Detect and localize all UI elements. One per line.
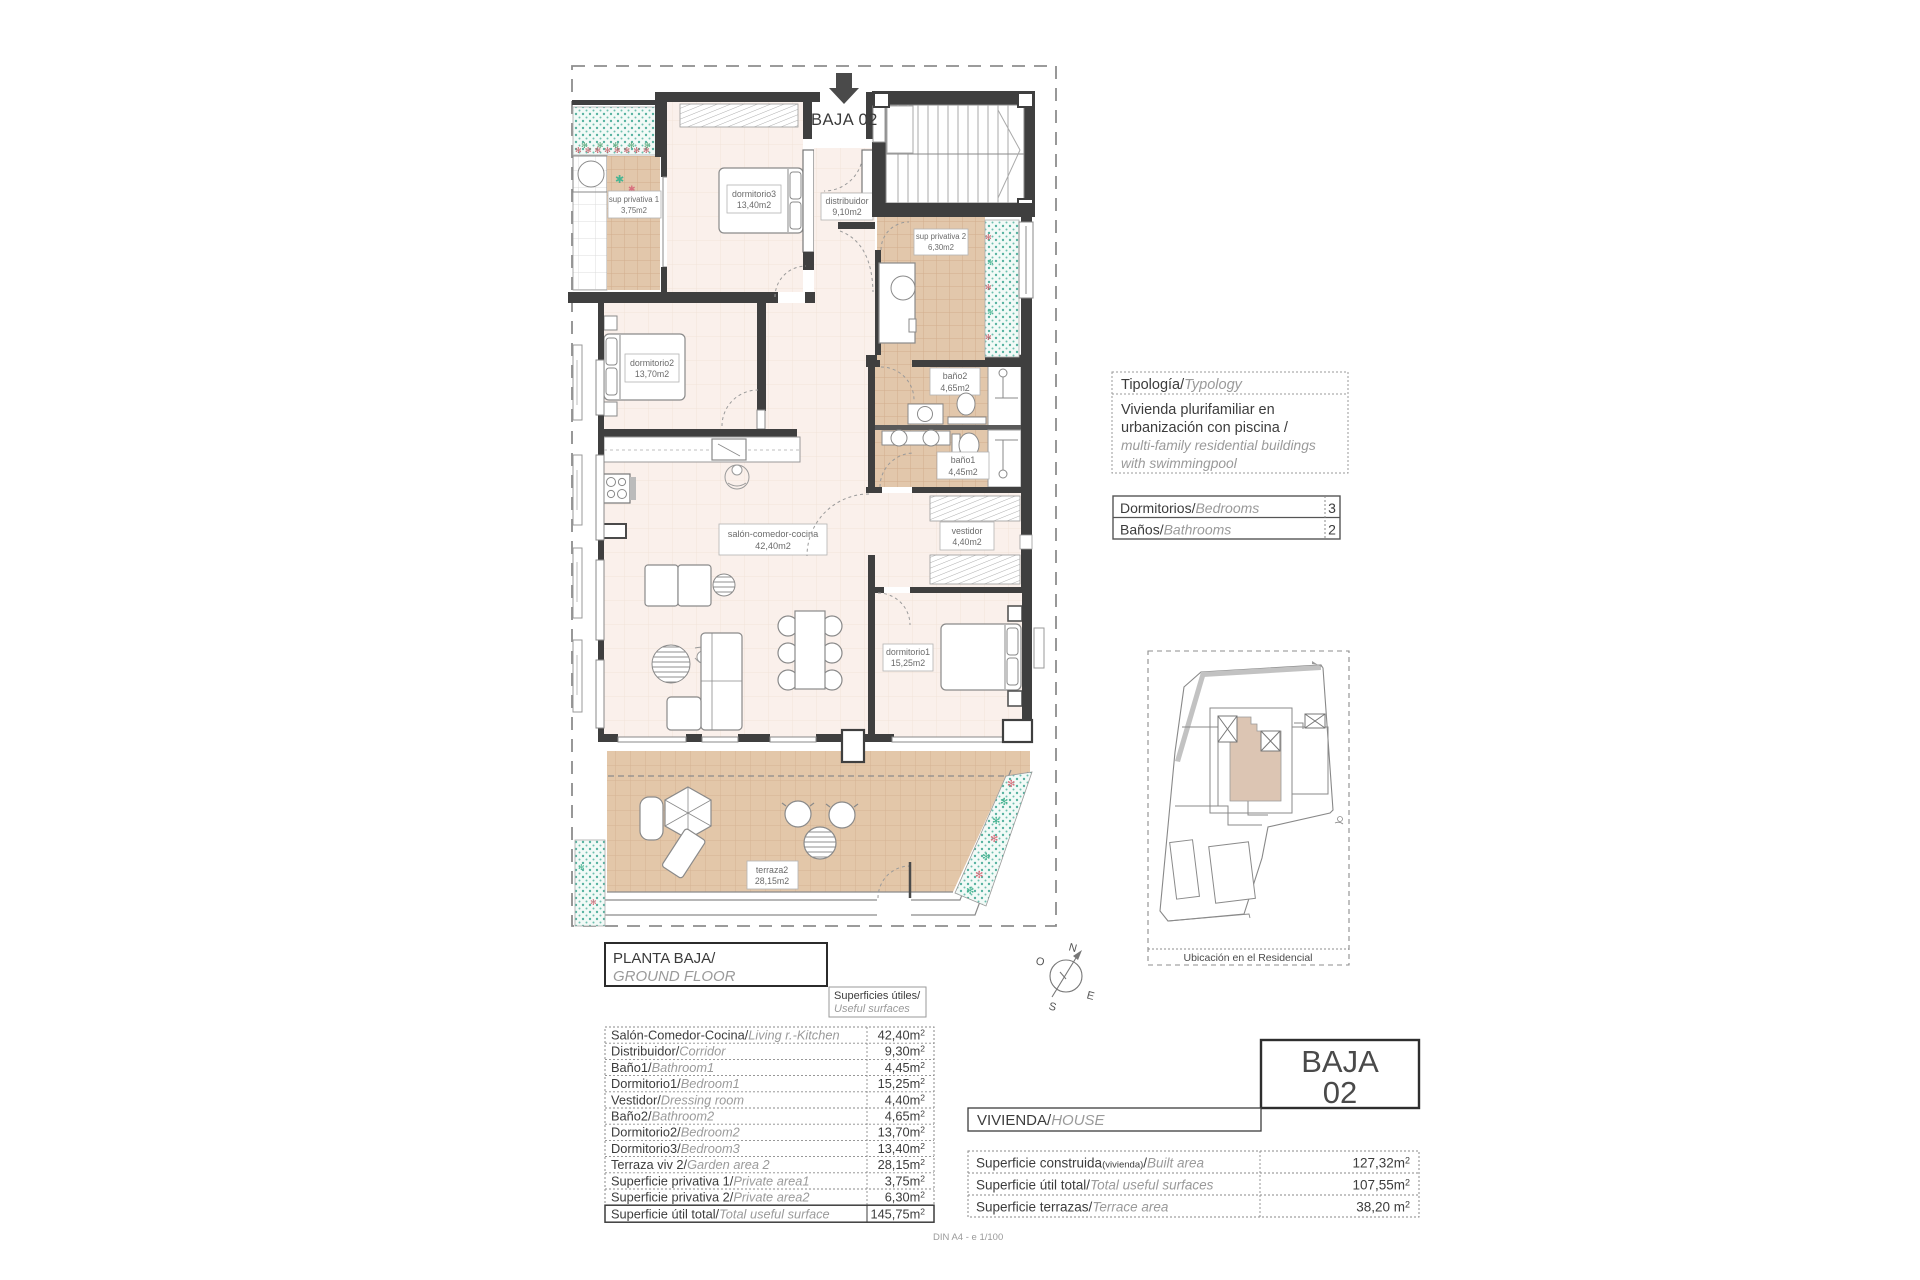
svg-text:dormitorio1: dormitorio1 [886, 647, 930, 657]
svg-text:4,40m2: 4,40m2 [885, 1092, 926, 1107]
svg-text:42,40m2: 42,40m2 [755, 541, 791, 551]
svg-text:42,40m2: 42,40m2 [878, 1028, 926, 1043]
svg-text:13,70m2: 13,70m2 [635, 369, 669, 379]
svg-text:Superficie terrazas/Terrace ar: Superficie terrazas/Terrace area [976, 1200, 1169, 1215]
svg-text:Vivienda plurifamiliar en: Vivienda plurifamiliar en [1121, 402, 1275, 418]
svg-text:127,32m2: 127,32m2 [1352, 1156, 1410, 1171]
svg-text:✻: ✻ [975, 870, 983, 881]
svg-text:15,25m2: 15,25m2 [891, 658, 925, 668]
svg-text:Superficie construida(vivienda: Superficie construida(vivienda)/Built ar… [976, 1156, 1205, 1171]
svg-text:✻: ✻ [1007, 779, 1015, 790]
svg-text:6,30m2: 6,30m2 [885, 1190, 926, 1205]
svg-text:Superficies útiles/: Superficies útiles/ [834, 990, 921, 1002]
svg-text:9,30m2: 9,30m2 [885, 1044, 926, 1059]
svg-text:PLANTA BAJA/: PLANTA BAJA/ [613, 950, 716, 967]
svg-text:6,30m2: 6,30m2 [928, 243, 954, 252]
svg-text:145,75m2: 145,75m2 [870, 1207, 925, 1222]
svg-text:13,40m2: 13,40m2 [737, 200, 771, 210]
svg-text:✻: ✻ [985, 283, 992, 292]
svg-text:BAJA: BAJA [1301, 1044, 1379, 1079]
svg-text:28,15m2: 28,15m2 [755, 876, 789, 886]
svg-text:with swimmingpool: with swimmingpool [1121, 456, 1238, 471]
svg-text:Salón-Comedor-Cocina/Living r.: Salón-Comedor-Cocina/Living r.-Kitchen [611, 1028, 840, 1043]
svg-text:salón-comedor-cocina: salón-comedor-cocina [728, 529, 819, 539]
svg-text:DIN A4 - e 1/100: DIN A4 - e 1/100 [933, 1232, 1003, 1243]
svg-text:3,75m2: 3,75m2 [621, 206, 647, 215]
svg-text:Dormitorios/Bedrooms: Dormitorios/Bedrooms [1120, 500, 1259, 516]
svg-text:3,75m2: 3,75m2 [885, 1173, 926, 1188]
svg-text:107,55m2: 107,55m2 [1352, 1178, 1410, 1193]
svg-text:Tipología/Typology: Tipología/Typology [1121, 377, 1243, 393]
svg-text:Baños/Bathrooms: Baños/Bathrooms [1120, 522, 1231, 538]
svg-text:sup privativa 2: sup privativa 2 [916, 232, 966, 241]
svg-text:BAJA 02: BAJA 02 [811, 111, 878, 129]
svg-text:13,70m2: 13,70m2 [878, 1125, 926, 1140]
svg-text:✻: ✻ [982, 852, 990, 863]
svg-text:Superficie privativa 2/Private: Superficie privativa 2/Private area2 [611, 1190, 809, 1205]
svg-text:13,40m2: 13,40m2 [878, 1141, 926, 1156]
svg-text:Useful surfaces: Useful surfaces [834, 1003, 910, 1015]
svg-text:baño2: baño2 [943, 371, 968, 381]
svg-text:4,45m2: 4,45m2 [885, 1060, 926, 1075]
svg-text:Superficie útil total/Total us: Superficie útil total/Total useful surfa… [611, 1207, 830, 1222]
svg-text:✻: ✻ [987, 308, 994, 317]
svg-text:38,20 m2: 38,20 m2 [1356, 1200, 1410, 1215]
svg-text:dormitorio3: dormitorio3 [732, 189, 776, 199]
svg-text:Superficie útil total/Total us: Superficie útil total/Total useful surfa… [976, 1178, 1214, 1193]
svg-text:02: 02 [1323, 1075, 1357, 1110]
svg-text:✻: ✻ [990, 834, 998, 845]
svg-text:vestidor: vestidor [952, 526, 983, 536]
svg-text:Distribuidor/Corridor: Distribuidor/Corridor [611, 1044, 726, 1059]
svg-text:Baño1/Bathroom1: Baño1/Bathroom1 [611, 1060, 714, 1075]
svg-text:4,65m2: 4,65m2 [940, 383, 969, 393]
svg-text:terraza2: terraza2 [756, 865, 788, 875]
svg-text:✱: ✱ [615, 174, 624, 186]
svg-text:9,10m2: 9,10m2 [832, 207, 861, 217]
svg-text:Dormitorio2/Bedroom2: Dormitorio2/Bedroom2 [611, 1125, 740, 1140]
svg-text:4,40m2: 4,40m2 [952, 537, 981, 547]
svg-text:Terraza viv 2/Garden area 2: Terraza viv 2/Garden area 2 [611, 1157, 770, 1172]
svg-text:15,25m2: 15,25m2 [878, 1076, 926, 1091]
svg-text:✻: ✻ [985, 333, 992, 342]
svg-text:✻: ✻ [578, 863, 585, 872]
svg-text:baño1: baño1 [951, 455, 976, 465]
svg-text:✻: ✻ [1000, 797, 1008, 808]
svg-text:3: 3 [1328, 500, 1336, 516]
svg-text:Vestidor/Dressing room: Vestidor/Dressing room [611, 1092, 744, 1107]
svg-text:sup privativa 1: sup privativa 1 [609, 195, 659, 204]
svg-text:✻: ✻ [590, 898, 597, 907]
svg-text:✻: ✻ [992, 816, 1000, 827]
svg-text:Dormitorio1/Bedroom1: Dormitorio1/Bedroom1 [611, 1076, 740, 1091]
svg-text:VIVIENDA/HOUSE: VIVIENDA/HOUSE [977, 1112, 1106, 1129]
svg-text:dormitorio2: dormitorio2 [630, 358, 674, 368]
svg-text:multi-family residential build: multi-family residential buildings [1121, 438, 1316, 453]
svg-text:4,65m2: 4,65m2 [885, 1109, 926, 1124]
svg-text:✻: ✻ [985, 233, 992, 242]
svg-text:28,15m2: 28,15m2 [878, 1157, 926, 1172]
svg-text:Ubicación en el Residencial: Ubicación en el Residencial [1184, 952, 1313, 964]
svg-text:✻✻✻✻✻: ✻✻✻✻✻ [581, 141, 660, 150]
svg-text:4,45m2: 4,45m2 [948, 467, 977, 477]
svg-text:Baño2/Bathroom2: Baño2/Bathroom2 [611, 1109, 714, 1124]
svg-text:✻: ✻ [966, 886, 974, 897]
svg-text:GROUND FLOOR: GROUND FLOOR [613, 968, 736, 985]
svg-text:2: 2 [1328, 522, 1336, 538]
svg-text:Superficie privativa 1/Private: Superficie privativa 1/Private area1 [611, 1173, 809, 1188]
svg-text:distribuidor: distribuidor [825, 196, 868, 206]
svg-text:urbanización con piscina /: urbanización con piscina / [1121, 420, 1289, 436]
svg-text:Dormitorio3/Bedroom3: Dormitorio3/Bedroom3 [611, 1141, 740, 1156]
svg-text:✻: ✻ [987, 258, 994, 267]
